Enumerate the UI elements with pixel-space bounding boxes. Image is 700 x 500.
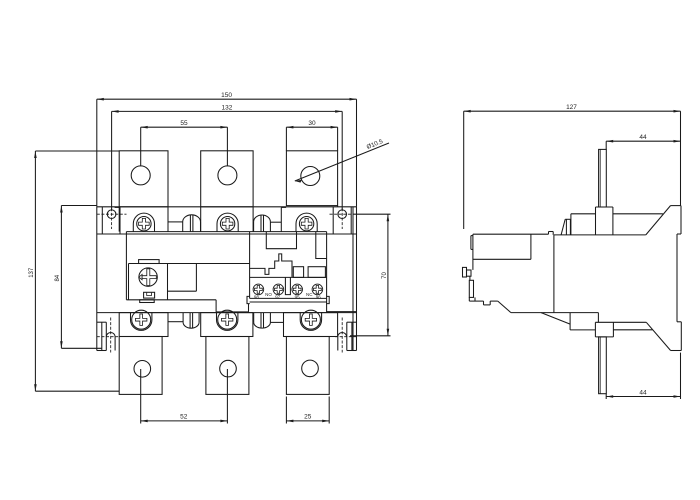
svg-text:25: 25 — [304, 413, 312, 420]
svg-text:52: 52 — [180, 413, 188, 420]
svg-text:NO: NO — [265, 292, 272, 297]
svg-text:44: 44 — [639, 390, 647, 397]
svg-text:44: 44 — [639, 134, 647, 141]
svg-text:150: 150 — [221, 92, 232, 99]
svg-text:NC: NC — [306, 292, 313, 297]
svg-text:84: 84 — [55, 274, 61, 281]
svg-text:55: 55 — [180, 120, 188, 127]
svg-text:30: 30 — [308, 120, 316, 127]
svg-text:96: 96 — [316, 295, 322, 300]
svg-text:95: 95 — [295, 295, 301, 300]
svg-text:137: 137 — [29, 267, 35, 278]
svg-text:70: 70 — [382, 272, 388, 279]
svg-text:127: 127 — [566, 104, 577, 111]
svg-text:98: 98 — [254, 295, 260, 300]
svg-text:97: 97 — [275, 295, 281, 300]
svg-text:132: 132 — [221, 104, 232, 111]
